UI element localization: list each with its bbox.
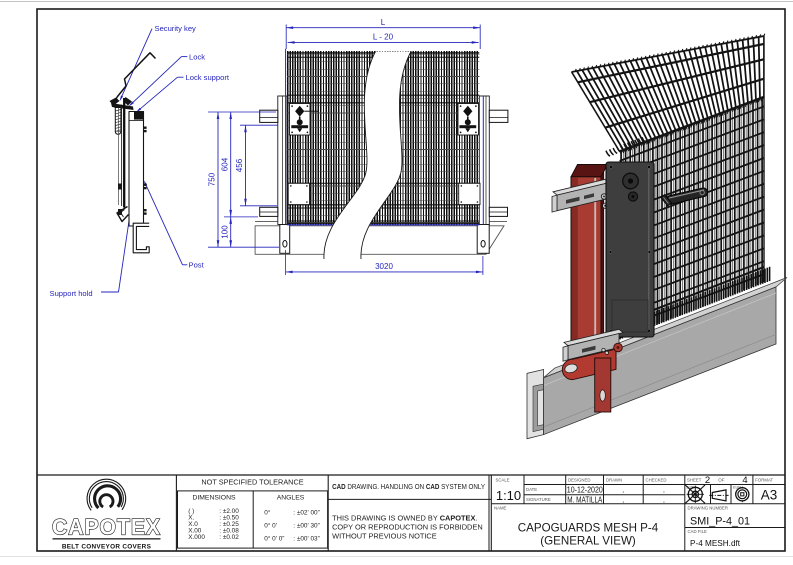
svg-text:WITHOUT PREVIOUS NOTICE: WITHOUT PREVIOUS NOTICE <box>332 531 437 540</box>
svg-text:SHEET: SHEET <box>687 477 702 482</box>
svg-text:CHECKED: CHECKED <box>646 477 667 482</box>
svg-text:2: 2 <box>705 475 710 486</box>
svg-text:604: 604 <box>220 157 229 171</box>
svg-text:.: . <box>622 494 624 504</box>
svg-text:P-4 MESH.dft: P-4 MESH.dft <box>690 539 741 548</box>
svg-text:FORMAT: FORMAT <box>755 477 773 482</box>
svg-text:3020: 3020 <box>375 262 393 271</box>
svg-text:DATE: DATE <box>526 487 537 492</box>
svg-text:DIMENSIONS: DIMENSIONS <box>192 494 236 501</box>
svg-text:750: 750 <box>208 172 217 186</box>
svg-text:DESIGNED: DESIGNED <box>568 477 590 482</box>
svg-text:Support hold: Support hold <box>50 289 93 298</box>
svg-text:BELT CONVEYOR COVERS: BELT CONVEYOR COVERS <box>62 544 152 551</box>
svg-text:THIS DRAWING IS OWNED BY CAPOT: THIS DRAWING IS OWNED BY CAPOTEX. <box>332 513 477 522</box>
svg-text:DRAWING NUMBER: DRAWING NUMBER <box>688 505 728 510</box>
svg-text:OF: OF <box>718 478 725 483</box>
svg-text:DRAWN: DRAWN <box>606 477 622 482</box>
svg-text:ANGLES: ANGLES <box>277 494 305 501</box>
svg-text:100: 100 <box>220 225 229 239</box>
svg-text:CAD DRAWING. HANDLING ON CAD S: CAD DRAWING. HANDLING ON CAD SYSTEM ONLY <box>332 484 485 491</box>
svg-text:CAD FILE: CAD FILE <box>688 529 707 534</box>
svg-text:X.000: X.000 <box>188 534 205 541</box>
svg-text:NOT SPECIFIED TOLERANCE: NOT SPECIFIED TOLERANCE <box>201 477 303 486</box>
svg-text:L - 20: L - 20 <box>373 32 394 41</box>
svg-text:SCALE: SCALE <box>496 477 510 482</box>
svg-text:Lock support: Lock support <box>186 73 230 82</box>
svg-text:Lock: Lock <box>189 52 205 61</box>
svg-text:Post: Post <box>189 261 205 270</box>
svg-text:0° 0' 0”: 0° 0' 0” <box>264 534 284 542</box>
svg-text:4: 4 <box>742 475 747 486</box>
svg-text:SIGNATURE: SIGNATURE <box>526 497 551 502</box>
svg-text:10-12-2020: 10-12-2020 <box>567 485 603 495</box>
svg-text:A3: A3 <box>761 488 778 503</box>
svg-text:CAPOGUARDS MESH P-4: CAPOGUARDS MESH P-4 <box>518 522 659 535</box>
svg-text:.: . <box>622 485 624 495</box>
svg-text:1:10: 1:10 <box>496 488 521 503</box>
svg-text:M. MATILLA: M. MATILLA <box>567 494 602 504</box>
svg-text:L: L <box>381 18 386 27</box>
svg-text:.: . <box>663 494 665 504</box>
svg-text:: ±0.02: : ±0.02 <box>219 534 239 541</box>
svg-text:: ±00' 30”: : ±00' 30” <box>293 522 319 529</box>
svg-text:Security key: Security key <box>155 24 197 33</box>
svg-text:SMI_P-4_01: SMI_P-4_01 <box>690 515 750 527</box>
svg-text:NAME: NAME <box>494 505 507 510</box>
svg-text:COPY OR REPRODUCTION IS FORBID: COPY OR REPRODUCTION IS FORBIDDEN <box>332 522 483 531</box>
svg-text:0° 0': 0° 0' <box>264 521 277 529</box>
svg-text:.: . <box>663 485 665 495</box>
svg-text:CAPOTEX: CAPOTEX <box>52 515 161 540</box>
svg-text:456: 456 <box>235 158 244 172</box>
svg-text:(GENERAL VIEW): (GENERAL VIEW) <box>540 535 636 548</box>
svg-text:: ±02' 00”: : ±02' 00” <box>293 509 319 516</box>
svg-text:: ±00' 03”: : ±00' 03” <box>293 535 319 542</box>
svg-text:0°: 0° <box>264 508 271 516</box>
